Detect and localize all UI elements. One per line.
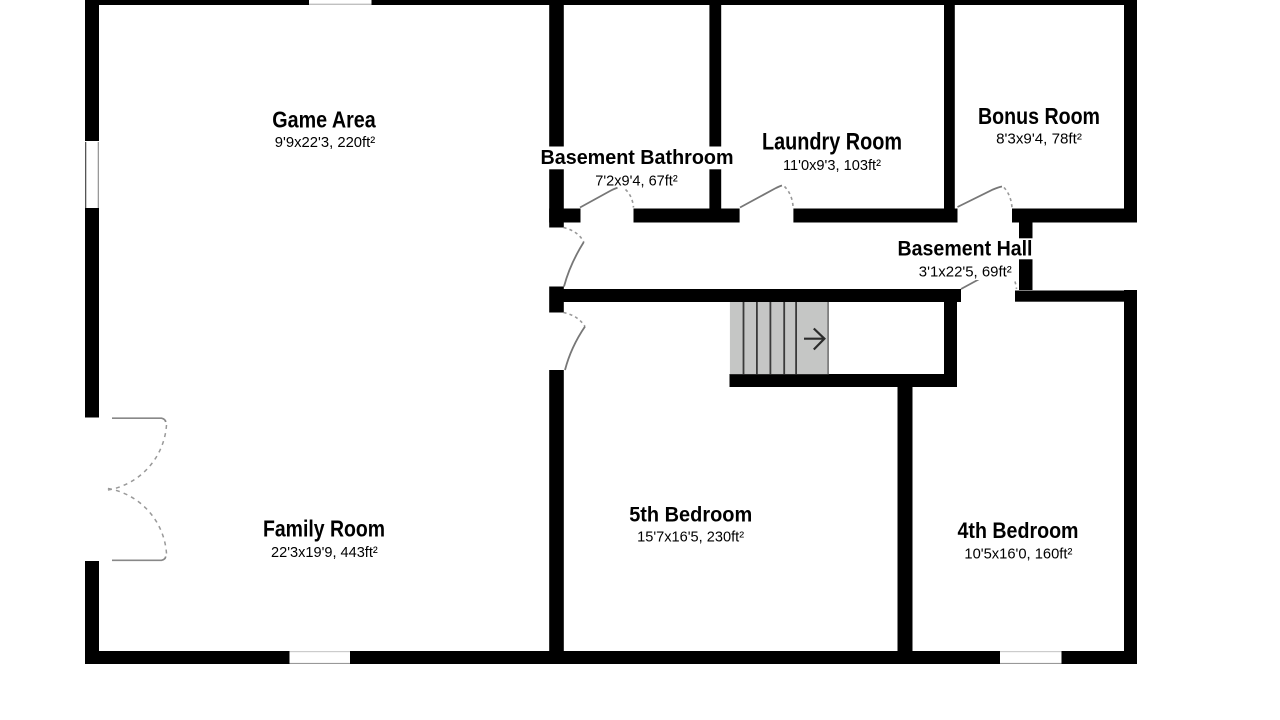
svg-text:11'0x9'3, 103ft²: 11'0x9'3, 103ft² xyxy=(783,157,881,174)
svg-text:4th Bedroom: 4th Bedroom xyxy=(958,518,1079,543)
svg-text:Basement Bathroom: Basement Bathroom xyxy=(541,147,734,169)
svg-text:8'3x9'4, 78ft²: 8'3x9'4, 78ft² xyxy=(996,132,1082,148)
svg-text:Game Area: Game Area xyxy=(272,106,376,132)
svg-text:9'9x22'3, 220ft²: 9'9x22'3, 220ft² xyxy=(275,134,376,151)
svg-text:Bonus Room: Bonus Room xyxy=(978,103,1100,129)
svg-text:10'5x16'0, 160ft²: 10'5x16'0, 160ft² xyxy=(964,546,1072,563)
svg-text:5th Bedroom: 5th Bedroom xyxy=(629,503,752,527)
svg-text:Basement Hall: Basement Hall xyxy=(898,238,1033,261)
svg-text:Family Room: Family Room xyxy=(263,516,385,542)
svg-text:7'2x9'4, 67ft²: 7'2x9'4, 67ft² xyxy=(595,173,677,190)
svg-text:15'7x16'5, 230ft²: 15'7x16'5, 230ft² xyxy=(637,530,744,546)
svg-text:3'1x22'5, 69ft²: 3'1x22'5, 69ft² xyxy=(919,263,1012,280)
svg-text:Laundry Room: Laundry Room xyxy=(762,129,902,156)
svg-text:22'3x19'9, 443ft²: 22'3x19'9, 443ft² xyxy=(271,544,378,561)
